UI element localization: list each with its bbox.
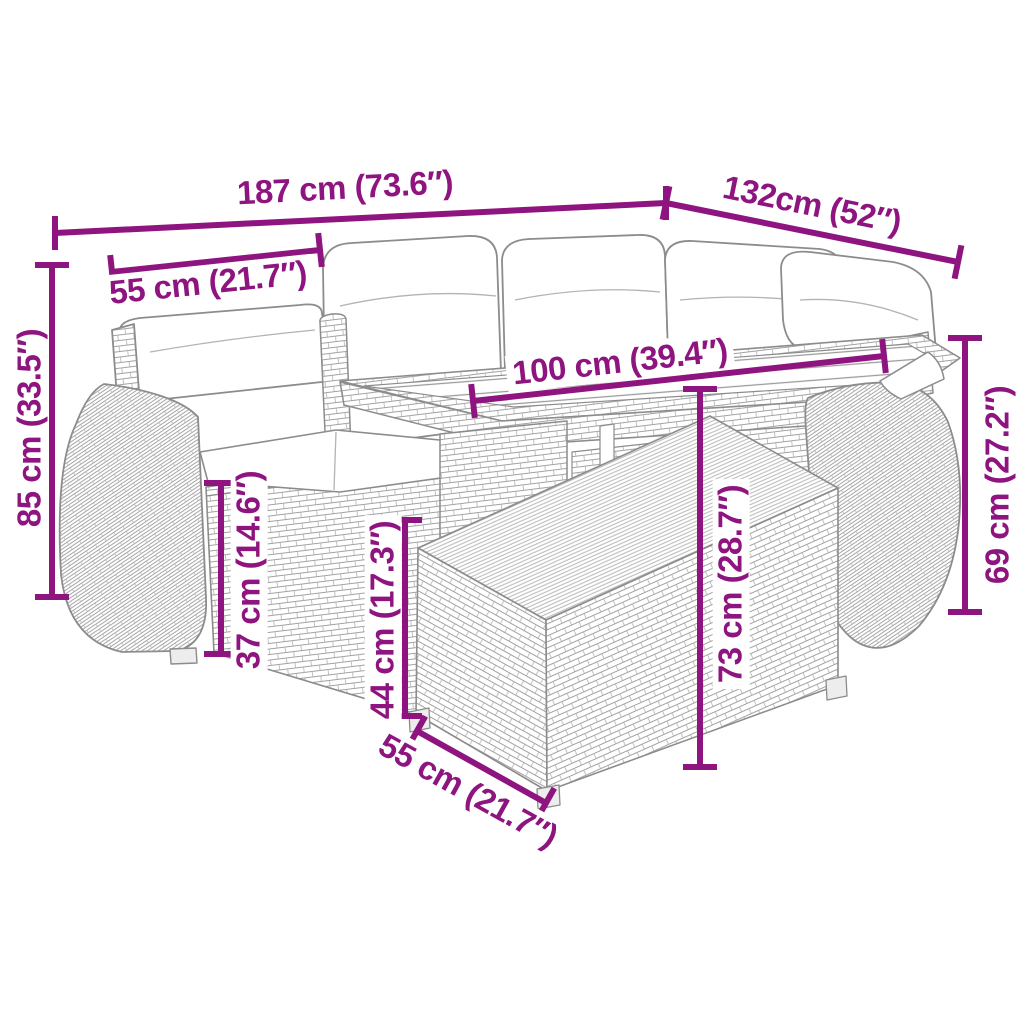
left-armrest	[60, 384, 206, 652]
dimension-label-sofa-height: 85 cm (33.5″)	[12, 323, 49, 533]
back-cushion-1	[120, 304, 331, 402]
dimension-label-armrest-height: 69 cm (27.2″)	[980, 380, 1017, 590]
furniture-line-art	[0, 0, 1024, 1024]
dimension-diagram: 187 cm (73.6″) 132cm (52″) 55 cm (21.7″)…	[0, 0, 1024, 1024]
dim-line	[55, 203, 666, 233]
left-armrest-foot	[170, 648, 197, 664]
dimension-label-table-height: 73 cm (28.7″)	[713, 479, 750, 689]
base-foot	[826, 676, 847, 700]
dimension-label-base-height: 44 cm (17.3″)	[365, 515, 402, 725]
dimension-label-seat-height: 37 cm (14.6″)	[231, 465, 268, 675]
